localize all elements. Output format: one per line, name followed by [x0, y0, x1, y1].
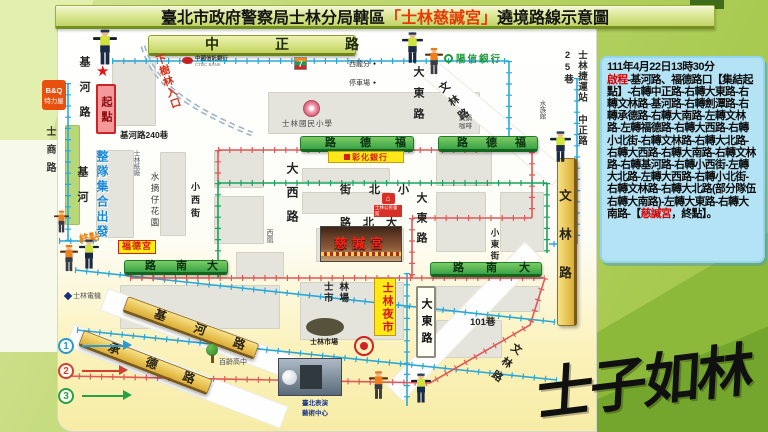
street-sign-danan-east: 路南大: [430, 262, 542, 277]
cafe-label: 真鍋咖啡: [459, 115, 475, 130]
street-label-xiaodong: 小東街: [489, 228, 501, 263]
slide: 中正路 路德福 路德福 路南大 路南大 基河路 承德路 文林路 大東路 士林夜市…: [0, 0, 768, 432]
street-sign-fude-east: 路德福: [438, 136, 538, 152]
street-label-xiaoxi: 小西街: [189, 182, 202, 221]
route-temple-word: 慈諴宮: [641, 208, 672, 220]
traffic-controller-figure: [369, 369, 388, 401]
landmark-xilong: 西龍分 ●: [349, 59, 376, 69]
police-officer-figure: [402, 30, 423, 65]
night-market-sign: 士林夜市: [374, 278, 396, 336]
electric-diamond-icon: [64, 292, 72, 300]
electric-label: 士林電機: [73, 291, 101, 301]
market-oval-logo: [306, 318, 344, 336]
fudegong-sign: 福德宮: [118, 240, 156, 254]
police-officer-figure: [93, 27, 117, 67]
sunny-bank-logo: 陽信銀行: [444, 51, 502, 65]
start-point-sign: 起點: [96, 84, 116, 134]
paca-sphere-icon: [282, 370, 297, 385]
street-label-jihe-lower: 基河: [74, 166, 90, 216]
page-title-highlight: 「士林慈諴宮」: [385, 4, 497, 28]
street-label-daxi: 大西路: [284, 162, 301, 234]
ctbc-label: 中國信託銀行: [195, 54, 228, 62]
legend-item-2: 2: [58, 363, 128, 379]
city-block: [236, 252, 284, 278]
poi-dot-icon: ●: [373, 80, 376, 86]
sunny-bank-ring-icon: [444, 54, 453, 63]
street-sign-wenlin-vertical: 文林路: [557, 158, 577, 326]
changhwa-logo-icon: [344, 154, 350, 160]
street-sign-fude-west: 路德福: [300, 136, 414, 152]
legend-arrow-blue: [82, 345, 128, 347]
street-sign-danan-west: 路南大: [124, 260, 228, 275]
city-block: [436, 192, 486, 252]
legend-item-1: 1: [58, 338, 128, 354]
street-label-jihe-240: 基河路240巷: [120, 129, 168, 141]
bq-label-bottom: 特力屋: [44, 95, 64, 105]
temple-lantern-strip: [321, 252, 401, 256]
city-block: [302, 168, 390, 182]
page-title-suffix: 遶境路線示意圖: [497, 4, 609, 28]
bq-store-sign: B&Q 特力屋: [42, 80, 66, 110]
market-logo-caption: 士林市場: [310, 337, 338, 347]
ctbc-label-en: CTBC BANK: [195, 62, 228, 67]
changhwa-label: 彰化銀行: [352, 152, 388, 163]
route-legend: 1 2 3: [58, 338, 128, 404]
area-label-shilin-market: 士林市場: [324, 282, 366, 304]
garden-label: 水摘仔花園: [149, 172, 161, 230]
tree-icon: [205, 344, 219, 363]
police-officer-figure: [79, 237, 99, 271]
legend-number-1: 1: [58, 338, 74, 354]
street-sign-zhongzheng: 中正路: [148, 35, 356, 56]
street-label-dadong-mid: 大東路: [413, 192, 429, 252]
city-block: [214, 196, 264, 244]
school-emblem-icon: [303, 100, 320, 117]
legend-number-3: 3: [58, 388, 74, 404]
civic-hall-label: 士林公民會館: [374, 205, 402, 217]
street-label-dadong-top: 大東路: [410, 66, 426, 129]
parking-label: 停車場: [349, 78, 370, 88]
route-date-line: 111年4月22日13時30分: [607, 61, 758, 74]
civic-hall-marker: ⌂ 士林公民會館: [374, 193, 402, 217]
street-label-shishang: 士商路: [42, 126, 57, 180]
paca-caption-line2: 藝術中心: [292, 407, 338, 417]
street-label-jihe-upper: 基河路: [76, 56, 92, 131]
paca-caption: 臺北表演 藝術中心: [292, 397, 338, 417]
legend-arrow-red: [82, 370, 124, 372]
paca-caption-line1: 臺北表演: [292, 397, 338, 407]
shihlin-electric-logo: 士林電機: [65, 291, 101, 301]
paca-building-icon: [300, 365, 322, 389]
changhwa-bank-sign: 彰化銀行: [328, 151, 404, 163]
city-block: [112, 60, 156, 126]
ctbc-oval-icon: [182, 57, 193, 64]
house-icon: ⌂: [382, 193, 395, 204]
xihuang-label: 西凰: [264, 229, 274, 243]
police-officer-figure: [550, 129, 571, 164]
traffic-controller-figure: [54, 209, 69, 234]
temple-label: 慈諴宮: [334, 233, 388, 252]
route-description-text: 啟程-基河路、福德路口【集結起點】-右轉中正路-右轉大東路-右轉文林路-基河路-…: [607, 74, 758, 220]
city-block: [160, 152, 186, 236]
assembly-note: 整隊集合出發: [94, 150, 111, 240]
route-body-text: -基河路、福德路口【集結起點】-右轉中正路-右轉大東路-右轉文林路-基河路-右轉…: [607, 74, 756, 220]
temple-photo: 慈諴宮: [320, 226, 402, 262]
police-officer-figure: [411, 371, 431, 405]
sunny-bank-label: 陽信銀行: [456, 51, 502, 65]
seven-eleven-logo: 7: [294, 57, 307, 70]
aquarium-label: 水族館: [536, 100, 546, 120]
route-start-word: 啟程: [607, 74, 627, 86]
title-bar: 臺北市政府警察局士林分局轄區 「士林慈諴宮」 遶境路線示意圖: [55, 5, 715, 29]
route-end-text: ，終點】。: [671, 208, 717, 220]
paper-mill-label: 士林紙廠: [130, 150, 140, 176]
city-block: [214, 150, 264, 188]
city-block: [436, 150, 492, 186]
paca-photo: [278, 358, 342, 396]
landmark-parking: 停車場 ●: [349, 78, 376, 88]
page-title-prefix: 臺北市政府警察局士林分局轄區: [161, 4, 385, 28]
bailing-school-label: 百齡高中: [219, 357, 247, 367]
night-market-association-logo: [354, 336, 374, 356]
association-logo-mark: [360, 342, 368, 350]
ctbc-bank-logo: 中國信託銀行 CTBC BANK: [182, 54, 228, 67]
legend-item-3: 3: [58, 388, 128, 404]
seven-eleven-glyph: 7: [298, 59, 303, 69]
poi-dot-icon: ●: [373, 61, 376, 67]
legend-number-2: 2: [58, 363, 74, 379]
legend-arrow-green: [82, 395, 128, 397]
bq-label-top: B&Q: [46, 86, 63, 95]
route-description-panel: 111年4月22日13時30分 啟程-基河路、福德路口【集結起點】-右轉中正路-…: [600, 56, 765, 263]
street-sign-dadong: 大東路: [416, 286, 436, 358]
traffic-controller-figure: [425, 46, 443, 76]
street-label-lane101: 101巷: [470, 314, 495, 328]
xilong-label: 西龍分: [349, 59, 370, 69]
traffic-controller-figure: [60, 243, 78, 273]
school-label: 士林國民小學: [282, 118, 333, 129]
